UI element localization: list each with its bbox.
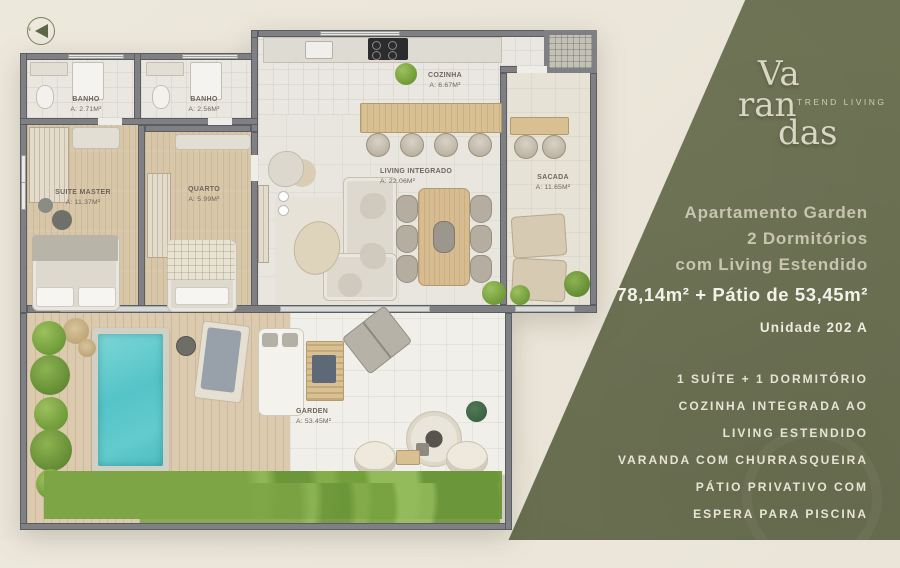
door-opening <box>251 155 258 181</box>
sofa-cushion <box>360 243 386 269</box>
churrasqueira-grill <box>544 30 597 73</box>
cushion <box>262 333 278 347</box>
dining-chair <box>470 195 492 223</box>
entry-door <box>517 66 547 73</box>
room-label-banho1: BANHOA: 2.71m² <box>54 95 118 115</box>
plant <box>32 321 66 355</box>
dining-chair <box>396 255 418 283</box>
bed-throw <box>32 235 118 261</box>
headline-line1: Apartamento Garden <box>675 200 868 226</box>
unit-number: Unidade 202 A <box>760 320 868 335</box>
bar-stool <box>366 133 390 157</box>
wall <box>145 125 251 132</box>
window <box>68 54 124 59</box>
bar-stool <box>542 135 566 159</box>
pillow <box>175 287 229 305</box>
bar-stool <box>468 133 492 157</box>
headline-line3: com Living Estendido <box>675 252 868 278</box>
plant <box>30 355 70 395</box>
door-opening <box>208 118 232 125</box>
plant <box>510 285 530 305</box>
glass-door <box>515 306 575 312</box>
bar-stool <box>434 133 458 157</box>
room-label-suite: SUITE MASTERA: 11.37m² <box>48 188 118 208</box>
vanity-counter <box>146 62 184 76</box>
dining-chair <box>470 225 492 253</box>
plant <box>30 429 72 471</box>
lounge-chair <box>511 213 568 259</box>
burner <box>388 51 397 60</box>
pool <box>92 328 169 472</box>
wall <box>20 313 27 530</box>
glass-door <box>280 306 430 312</box>
green-pouf <box>466 401 487 422</box>
armchair <box>268 151 304 187</box>
dining-chair <box>470 255 492 283</box>
balcony-counter <box>510 117 569 135</box>
window <box>182 54 238 59</box>
side-table <box>176 336 196 356</box>
tv-panel <box>258 185 269 263</box>
cushion <box>282 333 298 347</box>
brand-logo-line3: das <box>778 116 837 150</box>
room-label-sacada: SACADAA: 11.65m² <box>518 173 588 193</box>
pool-water <box>98 334 163 466</box>
bar-stool <box>514 135 538 159</box>
floor-plan: BANHOA: 2.71m² BANHOA: 2.56m² SUITE MAST… <box>20 25 612 535</box>
room-label-banho2: BANHOA: 2.56m² <box>172 95 236 115</box>
total-area: 78,14m² + Pátio de 53,45m² <box>616 284 868 306</box>
door-opening <box>98 118 122 125</box>
burner <box>372 51 381 60</box>
dresser <box>72 127 120 149</box>
pouf <box>52 210 72 230</box>
plant <box>482 281 506 305</box>
burner <box>372 41 381 50</box>
toilet <box>36 85 54 109</box>
desk <box>175 134 251 150</box>
serving-tray <box>396 450 420 465</box>
dining-chair <box>396 195 418 223</box>
plant <box>34 397 68 431</box>
hedge-plants <box>140 483 500 523</box>
wall <box>590 73 597 305</box>
brand-tagline: TREND LIVING <box>797 97 887 107</box>
window <box>320 31 400 36</box>
plaid-blanket <box>167 240 235 280</box>
room-label-quarto: QUARTOA: 5.99m² <box>172 185 236 205</box>
wall <box>134 53 141 125</box>
wall <box>138 125 145 312</box>
feature-item: 1 SUÍTE + 1 DORMITÓRIO <box>618 366 868 393</box>
headline: Apartamento Garden 2 Dormitórios com Liv… <box>675 200 868 278</box>
watermark-ring <box>742 428 882 568</box>
room-label-living: LIVING INTEGRADOA: 22.06m² <box>380 167 490 187</box>
feature-item: COZINHA INTEGRADA AO <box>618 393 868 420</box>
room-label-cozinha: COZINHAA: 6.67m² <box>410 71 480 91</box>
plant <box>564 271 590 297</box>
pillow <box>78 287 116 307</box>
sink <box>305 41 333 59</box>
window <box>21 155 26 210</box>
room-label-garden: GARDENA: 53.45m² <box>296 407 366 427</box>
bar-stool <box>400 133 424 157</box>
dining-chair <box>396 225 418 253</box>
wall-light <box>278 191 289 202</box>
wall <box>505 313 512 530</box>
wicker-planter <box>78 339 96 357</box>
sofa-cushion <box>338 273 362 297</box>
bench-cushion <box>312 355 336 383</box>
vanity-counter <box>30 62 68 76</box>
sofa-cushion <box>360 193 386 219</box>
wall-light <box>278 205 289 216</box>
wall <box>20 523 512 530</box>
headline-line2: 2 Dormitórios <box>675 226 868 252</box>
pillow <box>36 287 74 307</box>
toilet <box>152 85 170 109</box>
burner <box>388 41 397 50</box>
kitchen-island <box>360 103 502 133</box>
table-centerpiece <box>433 221 455 253</box>
